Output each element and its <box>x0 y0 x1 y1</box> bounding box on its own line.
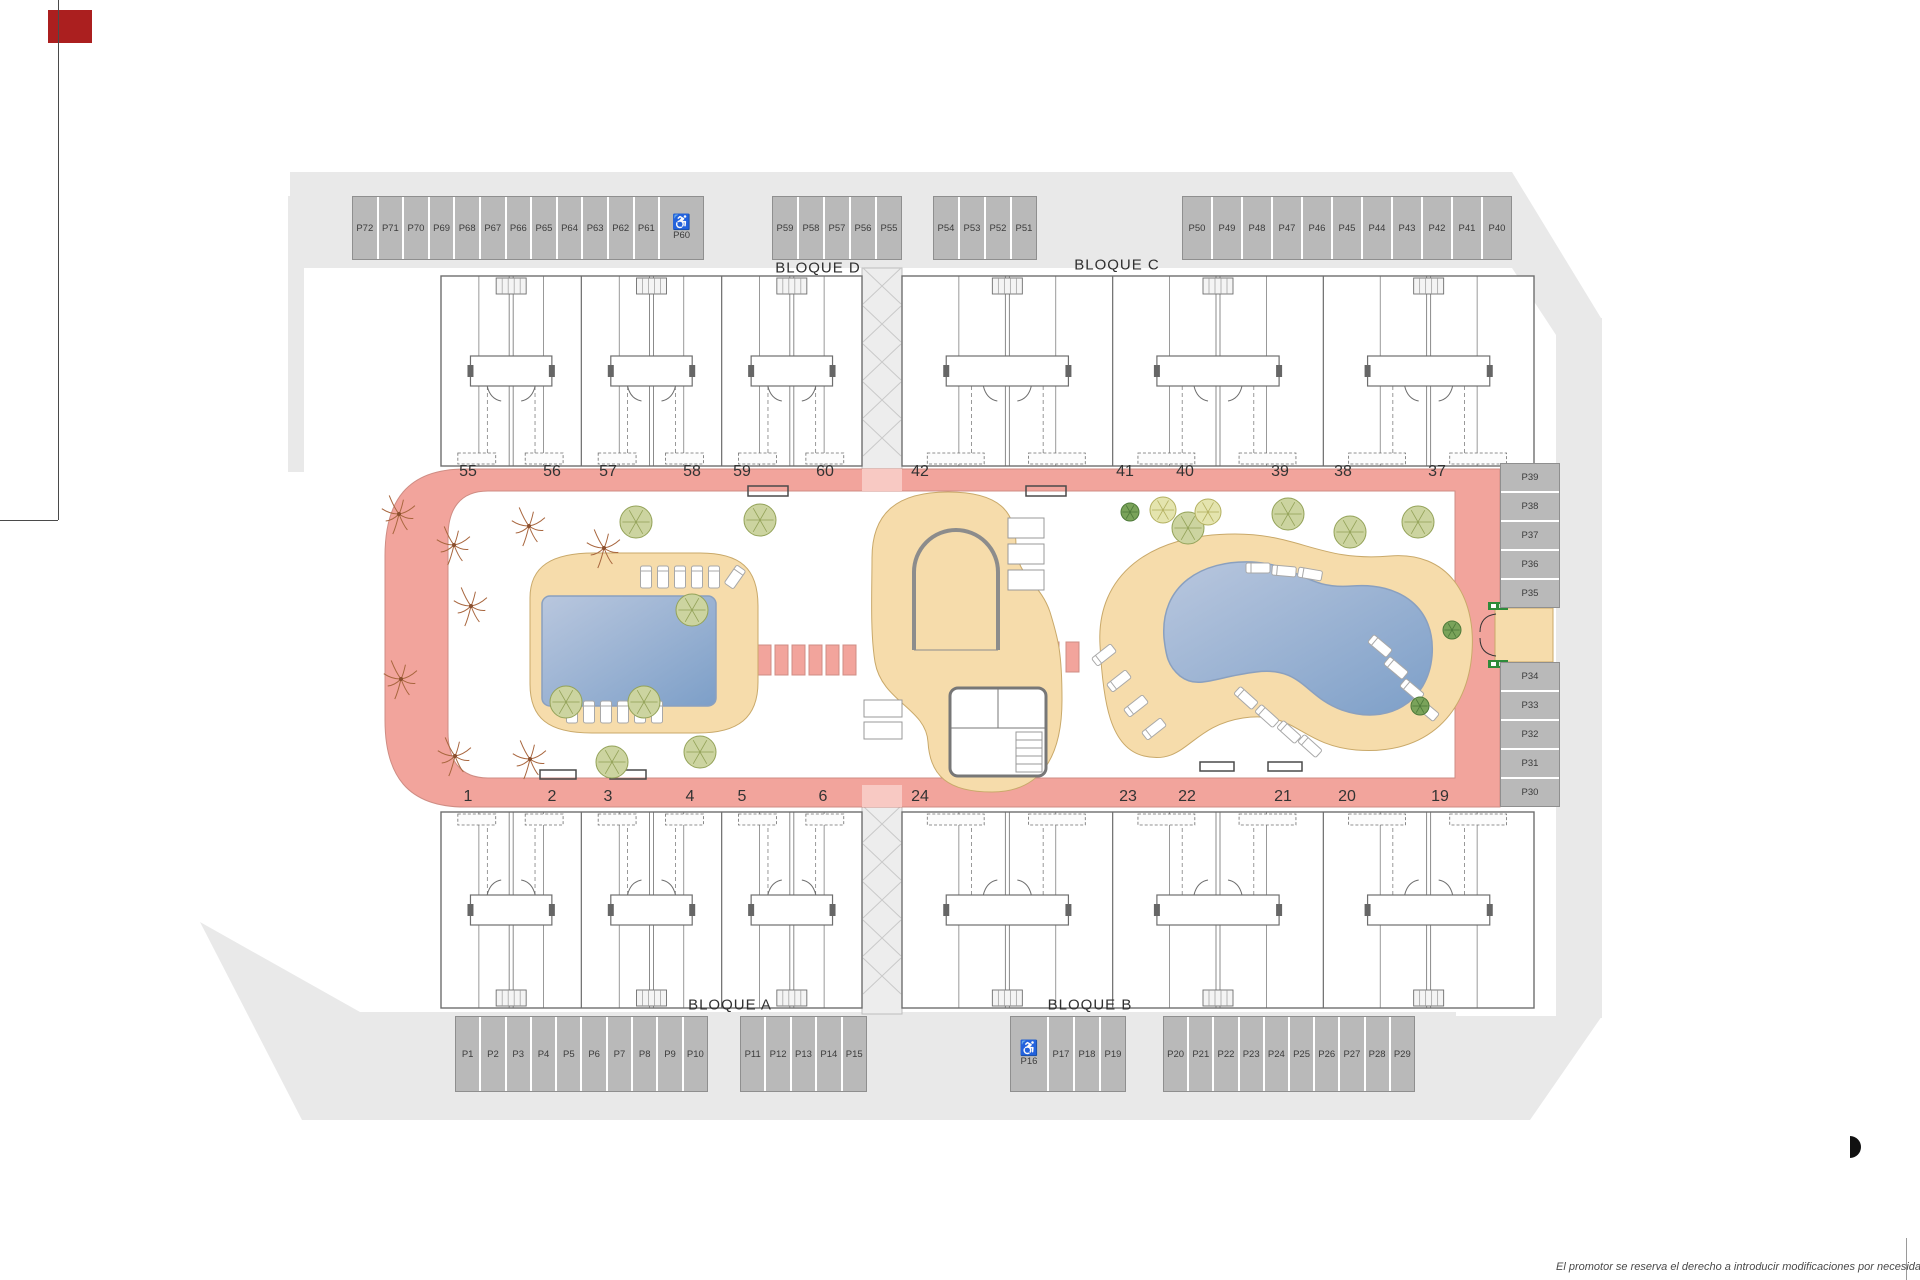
parking-group-right-lower: P34P33P32P31P30 <box>1500 662 1560 807</box>
tree <box>676 594 708 626</box>
tree <box>628 686 660 718</box>
parking-stall: P58 <box>799 197 823 259</box>
tree <box>596 746 628 778</box>
tree <box>1195 499 1221 525</box>
parking-stall: P38 <box>1501 493 1559 520</box>
parking-stall-label: P63 <box>587 223 604 234</box>
parking-stall: P22 <box>1214 1017 1237 1091</box>
parking-stall: P24 <box>1265 1017 1288 1091</box>
parking-stall-label: P6 <box>588 1049 600 1060</box>
unit-number: 5 <box>738 788 747 806</box>
parking-stall-label: P27 <box>1343 1049 1360 1060</box>
unit-number: 21 <box>1274 788 1292 806</box>
red-marker <box>48 10 92 43</box>
parking-stall: P17 <box>1049 1017 1073 1091</box>
page-border-line <box>58 0 59 520</box>
lounger <box>692 566 703 588</box>
parking-stall-label: P66 <box>510 223 527 234</box>
lounger <box>584 701 595 723</box>
unit-number: 39 <box>1271 463 1289 481</box>
east-entrance <box>1495 608 1553 662</box>
lounger <box>658 566 669 588</box>
parking-stall: P67 <box>481 197 505 259</box>
parking-stall: P18 <box>1075 1017 1099 1091</box>
parking-stall-label: P59 <box>777 223 794 234</box>
building-block <box>902 812 1534 1008</box>
parking-stall: P11 <box>741 1017 764 1091</box>
parking-stall: P64 <box>558 197 582 259</box>
parking-stall: P27 <box>1340 1017 1363 1091</box>
unit-number: 59 <box>733 463 751 481</box>
parking-stall-label: P43 <box>1399 223 1416 234</box>
parking-stall-label: P32 <box>1522 729 1539 740</box>
accessible-parking-icon: ♿ <box>1020 1041 1039 1056</box>
parking-stall-label: P22 <box>1218 1049 1235 1060</box>
parking-stall-label: P1 <box>462 1049 474 1060</box>
parking-stall-label: P47 <box>1279 223 1296 234</box>
parking-stall: P72 <box>353 197 377 259</box>
tree <box>1150 497 1176 523</box>
parking-stall-label: P26 <box>1318 1049 1335 1060</box>
tree <box>684 736 716 768</box>
parking-stall: P34 <box>1501 663 1559 690</box>
parking-stall: P48 <box>1243 197 1271 259</box>
parking-stall: ♿P16 <box>1011 1017 1047 1091</box>
parking-group-top-left: P72P71P70P69P68P67P66P65P64P63P62P61♿P60 <box>352 196 704 260</box>
parking-stall-label: P2 <box>487 1049 499 1060</box>
unit-number: 19 <box>1431 788 1449 806</box>
parking-stall: P29 <box>1391 1017 1414 1091</box>
parking-stall: P45 <box>1333 197 1361 259</box>
parking-stall: P46 <box>1303 197 1331 259</box>
parking-stall-label: P67 <box>484 223 501 234</box>
parking-stall: P26 <box>1315 1017 1338 1091</box>
parking-stall: P1 <box>456 1017 479 1091</box>
unit-number: 1 <box>464 788 473 806</box>
parking-stall: P31 <box>1501 750 1559 777</box>
parking-stall: P8 <box>633 1017 656 1091</box>
parking-stall-label: P70 <box>408 223 425 234</box>
parking-stall-label: P57 <box>829 223 846 234</box>
parking-stall: P42 <box>1423 197 1451 259</box>
parking-stall: P70 <box>404 197 428 259</box>
tree <box>1402 506 1434 538</box>
parking-stall: P62 <box>609 197 633 259</box>
accessible-parking-icon: ♿ <box>672 215 691 230</box>
parking-stall-label: P12 <box>770 1049 787 1060</box>
parking-stall: P6 <box>582 1017 605 1091</box>
parking-stall-label: P11 <box>745 1049 761 1060</box>
unit-number: 55 <box>459 463 477 481</box>
parking-stall-label: P56 <box>855 223 872 234</box>
lounger <box>1246 563 1270 573</box>
parking-stall-label: P54 <box>938 223 955 234</box>
parking-stall: P30 <box>1501 779 1559 806</box>
parking-stall-label: P14 <box>820 1049 837 1060</box>
parking-group-top-mid-2: P54P53P52P51 <box>933 196 1037 260</box>
parking-stall: P28 <box>1366 1017 1389 1091</box>
parking-stall: P36 <box>1501 551 1559 578</box>
parking-stall: P23 <box>1240 1017 1263 1091</box>
parking-stall: P12 <box>766 1017 789 1091</box>
parking-stall-label: P33 <box>1522 700 1539 711</box>
site-plan-drawing <box>0 0 1920 1280</box>
parking-stall-label: P72 <box>356 223 373 234</box>
parking-stall-label: P51 <box>1016 223 1033 234</box>
parking-stall-label: P44 <box>1369 223 1386 234</box>
parking-stall: P59 <box>773 197 797 259</box>
parking-stall-label: P29 <box>1394 1049 1411 1060</box>
parking-stall-label: P9 <box>664 1049 676 1060</box>
parking-stall: P19 <box>1101 1017 1125 1091</box>
parking-stall-label: P41 <box>1459 223 1476 234</box>
parking-stall: P40 <box>1483 197 1511 259</box>
lounger <box>641 566 652 588</box>
unit-number: 23 <box>1119 788 1137 806</box>
parking-stall-label: P15 <box>846 1049 863 1060</box>
unit-number: 57 <box>599 463 617 481</box>
tree <box>1121 503 1139 521</box>
unit-number: 41 <box>1116 463 1134 481</box>
parking-stall: ♿P60 <box>660 197 703 259</box>
parking-stall: P32 <box>1501 721 1559 748</box>
parking-stall: P56 <box>851 197 875 259</box>
parking-stall: P51 <box>1012 197 1036 259</box>
parking-stall-label: P60 <box>673 230 690 241</box>
architectural-site-plan: P72P71P70P69P68P67P66P65P64P63P62P61♿P60… <box>0 0 1920 1280</box>
lounger <box>675 566 686 588</box>
parking-stall-label: P8 <box>639 1049 651 1060</box>
parking-stall-label: P19 <box>1105 1049 1122 1060</box>
building-block <box>441 276 862 466</box>
parking-group-top-mid-1: P59P58P57P56P55 <box>772 196 902 260</box>
parking-stall: P15 <box>843 1017 866 1091</box>
label-bloque-a: BLOQUE A <box>688 997 772 1014</box>
label-bloque-b: BLOQUE B <box>1048 997 1133 1014</box>
parking-stall-label: P13 <box>795 1049 812 1060</box>
parking-stall-label: P53 <box>964 223 981 234</box>
parking-stall: P66 <box>507 197 531 259</box>
unit-number: 60 <box>816 463 834 481</box>
parking-stall: P33 <box>1501 692 1559 719</box>
parking-stall-label: P48 <box>1249 223 1266 234</box>
unit-number: 56 <box>543 463 561 481</box>
parking-stall: P2 <box>481 1017 504 1091</box>
parking-stall-label: P58 <box>803 223 820 234</box>
parking-stall: P10 <box>684 1017 707 1091</box>
tree <box>620 506 652 538</box>
unit-number: 42 <box>911 463 929 481</box>
parking-stall: P39 <box>1501 464 1559 491</box>
parking-stall-label: P37 <box>1522 530 1539 541</box>
parking-stall-label: P42 <box>1429 223 1446 234</box>
parking-group-top-right: P50P49P48P47P46P45P44P43P42P41P40 <box>1182 196 1512 260</box>
parking-stall-label: P16 <box>1021 1056 1038 1067</box>
tree <box>1443 621 1461 639</box>
label-bloque-d: BLOQUE D <box>775 260 861 277</box>
parking-stall-label: P61 <box>638 223 655 234</box>
parking-stall: P41 <box>1453 197 1481 259</box>
lounger <box>618 701 629 723</box>
parking-stall: P54 <box>934 197 958 259</box>
parking-stall: P65 <box>532 197 556 259</box>
building-block <box>902 276 1534 466</box>
parking-stall: P61 <box>635 197 659 259</box>
parking-stall: P3 <box>507 1017 530 1091</box>
parking-stall: P13 <box>792 1017 815 1091</box>
parking-stall: P69 <box>430 197 454 259</box>
parking-stall-label: P20 <box>1167 1049 1184 1060</box>
tree <box>1411 697 1429 715</box>
parking-stall: P20 <box>1164 1017 1187 1091</box>
parking-stall: P5 <box>557 1017 580 1091</box>
parking-stall: P44 <box>1363 197 1391 259</box>
parking-stall: P57 <box>825 197 849 259</box>
unit-number: 6 <box>819 788 828 806</box>
parking-stall-label: P39 <box>1522 472 1539 483</box>
parking-stall-label: P30 <box>1522 787 1539 798</box>
parking-group-bottom-left: P1P2P3P4P5P6P7P8P9P10 <box>455 1016 708 1092</box>
parking-stall-label: P24 <box>1268 1049 1285 1060</box>
label-bloque-c: BLOQUE C <box>1074 257 1160 274</box>
disclaimer-text: El promotor se reserva el derecho a intr… <box>1556 1261 1920 1273</box>
parking-stall-label: P46 <box>1309 223 1326 234</box>
unit-number: 20 <box>1338 788 1356 806</box>
parking-stall: P49 <box>1213 197 1241 259</box>
parking-stall: P9 <box>658 1017 681 1091</box>
parking-stall-label: P38 <box>1522 501 1539 512</box>
parking-group-bottom-mid-2: ♿P16P17P18P19 <box>1010 1016 1126 1092</box>
lounger <box>601 701 612 723</box>
tree <box>1334 516 1366 548</box>
parking-group-bottom-right: P20P21P22P23P24P25P26P27P28P29 <box>1163 1016 1415 1092</box>
unit-number: 58 <box>683 463 701 481</box>
parking-group-bottom-mid-1: P11P12P13P14P15 <box>740 1016 867 1092</box>
parking-stall-label: P62 <box>612 223 629 234</box>
parking-stall-label: P4 <box>538 1049 550 1060</box>
parking-stall-label: P10 <box>687 1049 704 1060</box>
parking-stall-label: P31 <box>1522 758 1539 769</box>
unit-number: 3 <box>604 788 613 806</box>
parking-stall-label: P34 <box>1522 671 1539 682</box>
parking-stall: P25 <box>1290 1017 1313 1091</box>
parking-stall: P4 <box>532 1017 555 1091</box>
parking-stall-label: P21 <box>1192 1049 1209 1060</box>
lounger <box>709 566 720 588</box>
parking-stall-label: P40 <box>1489 223 1506 234</box>
unit-number: 40 <box>1176 463 1194 481</box>
parking-stall-label: P65 <box>536 223 553 234</box>
unit-number: 24 <box>911 788 929 806</box>
parking-stall-label: P49 <box>1219 223 1236 234</box>
parking-stall-label: P52 <box>990 223 1007 234</box>
parking-stall-label: P64 <box>561 223 578 234</box>
parking-stall: P50 <box>1183 197 1211 259</box>
parking-stall: P55 <box>877 197 901 259</box>
parking-group-right-upper: P39P38P37P36P35 <box>1500 463 1560 608</box>
divider-line <box>1906 1238 1907 1280</box>
page-border-line <box>0 520 58 521</box>
parking-stall-label: P45 <box>1339 223 1356 234</box>
parking-stall-label: P71 <box>382 223 399 234</box>
parking-stall-label: P5 <box>563 1049 575 1060</box>
parking-stall: P71 <box>379 197 403 259</box>
parking-stall-label: P3 <box>512 1049 524 1060</box>
parking-stall-label: P28 <box>1369 1049 1386 1060</box>
parking-stall: P53 <box>960 197 984 259</box>
parking-stall-label: P18 <box>1079 1049 1096 1060</box>
parking-stall: P14 <box>817 1017 840 1091</box>
unit-number: 2 <box>548 788 557 806</box>
parking-stall-label: P35 <box>1522 588 1539 599</box>
parking-stall: P43 <box>1393 197 1421 259</box>
parking-stall: P68 <box>455 197 479 259</box>
parking-stall-label: P23 <box>1243 1049 1260 1060</box>
parking-stall: P35 <box>1501 580 1559 607</box>
parking-stall-label: P50 <box>1189 223 1206 234</box>
parking-stall: P47 <box>1273 197 1301 259</box>
parking-stall: P37 <box>1501 522 1559 549</box>
parking-stall-label: P17 <box>1053 1049 1070 1060</box>
tree <box>1272 498 1304 530</box>
parking-stall-label: P69 <box>433 223 450 234</box>
parking-stall-label: P25 <box>1293 1049 1310 1060</box>
parking-stall: P63 <box>583 197 607 259</box>
parking-stall: P7 <box>608 1017 631 1091</box>
tree <box>744 504 776 536</box>
parking-stall: P21 <box>1189 1017 1212 1091</box>
tree <box>550 686 582 718</box>
parking-stall: P52 <box>986 197 1010 259</box>
unit-number: 4 <box>686 788 695 806</box>
unit-number: 37 <box>1428 463 1446 481</box>
lounger <box>1272 565 1297 577</box>
parking-stall-label: P68 <box>459 223 476 234</box>
parking-stall-label: P7 <box>614 1049 626 1060</box>
building-block <box>441 812 862 1008</box>
unit-number: 38 <box>1334 463 1352 481</box>
parking-stall-label: P36 <box>1522 559 1539 570</box>
parking-stall-label: P55 <box>881 223 898 234</box>
unit-number: 22 <box>1178 788 1196 806</box>
